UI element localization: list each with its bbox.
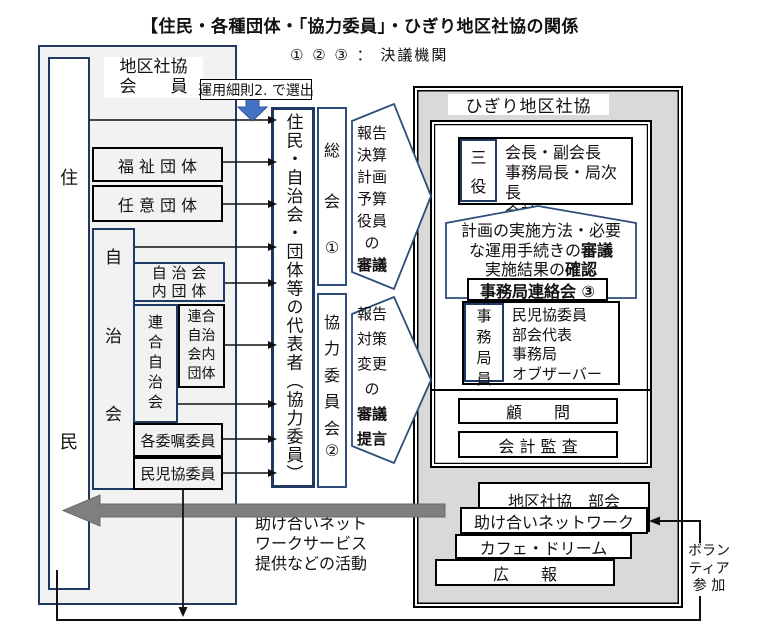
- page-title: 【住民・各種団体・「協力委員」・ひぎり地区社協の関係: [0, 12, 720, 37]
- organization-diagram: 【住民・各種団体・「協力委員」・ひぎり地区社協の関係 ① ② ③ ： 決議機関 …: [0, 0, 762, 636]
- officer-role: 事務局長・局次長: [505, 163, 631, 203]
- flow-word: 計画: [357, 166, 387, 187]
- assoc-internal-line2: 内 団 体: [152, 282, 207, 300]
- chevron-text: 計画の実施方法・必要 な運用手続きの審議 実施結果の確認: [446, 221, 636, 280]
- advisor-box: 顧 問: [458, 398, 618, 424]
- help-network-box: 助け合いネットワーク: [460, 507, 648, 534]
- coop-char: 力: [324, 335, 340, 359]
- welfare-groups-box: 福 祉 団 体: [92, 147, 223, 182]
- secretariat-char: 員: [476, 368, 491, 389]
- federation-internal-groups-box: 連合 自治 会内 団体: [178, 304, 225, 388]
- federation-assoc-label: 連合自治会: [145, 314, 166, 414]
- secretariat-char: 務: [476, 326, 491, 347]
- coop-char: 員: [324, 388, 340, 412]
- assembly-char: 会: [324, 188, 340, 212]
- secretariat-label-box: 事 務 局 員: [464, 303, 504, 382]
- flow-word: 審議: [357, 254, 387, 275]
- member-label-line1: 地区社協: [104, 57, 203, 77]
- volunteer-line: ボラン: [684, 543, 734, 561]
- voluntary-groups-box: 任 意 団 体: [92, 185, 223, 222]
- flow-word: 審議: [357, 403, 387, 424]
- officers-members: 会長・副会長 事務局長・局次長 会計: [505, 143, 631, 223]
- secretariat-member: 事務局: [512, 345, 602, 365]
- minji-members-box: 民児協委員: [133, 457, 223, 490]
- member-label: 地区社協 会 員: [104, 57, 203, 98]
- chevron-line1: 計画の実施方法・必要: [446, 221, 636, 241]
- secretariat-member: 民児協委員: [512, 306, 602, 326]
- coop-char: 協: [324, 309, 340, 333]
- volunteer-label: ボラン ティア 参 加: [684, 543, 734, 596]
- assoc-internal-groups-box: 自 治 会 内 団 体: [133, 262, 225, 302]
- assembly-flow-text: 報告 決算 計画 予算 役員 の 審議: [349, 122, 395, 275]
- selection-note-label: 運用細則2. で選出: [198, 80, 314, 100]
- residents-box: 住 民: [48, 57, 90, 590]
- jichikai-char: 治: [105, 322, 122, 347]
- flow-word: 決算: [357, 144, 387, 165]
- secretariat-char: 事: [476, 305, 491, 326]
- neighborhood-assoc-box: 自 治 会: [92, 228, 135, 490]
- flow-word: 変更: [357, 353, 387, 374]
- committee-flow-text: 報告 対策 変更 の 審議 提言: [349, 303, 395, 449]
- officer-role: 会計: [505, 203, 631, 223]
- higiri-header: ひぎり地区社協: [448, 94, 609, 115]
- flow-word: 報告: [357, 303, 387, 324]
- residents-char: 住: [60, 164, 78, 190]
- cafe-dream-box: カフェ・ドリーム: [455, 534, 632, 559]
- activity-note: 助け合いネット ワークサービス 提供などの活動: [255, 514, 367, 574]
- selection-note-box: 運用細則2. で選出: [200, 79, 312, 100]
- legend-note: ① ② ③ ： 決議機関: [290, 44, 448, 65]
- assembly-char: 総: [324, 137, 340, 161]
- flow-word: 役員: [357, 210, 387, 231]
- secretariat-liaison-box: 事務局連絡会 ③: [467, 278, 608, 301]
- chevron-line2: な運用手続きの審議: [446, 241, 636, 261]
- flow-word: の: [364, 232, 379, 253]
- activity-line: 提供などの活動: [255, 554, 367, 574]
- officers-label-box: 三 役: [460, 139, 497, 202]
- pr-box: 広 報: [435, 559, 615, 586]
- officers-char: 三: [470, 144, 486, 168]
- volunteer-line: ティア: [684, 561, 734, 579]
- flow-word: 予算: [357, 188, 387, 209]
- coop-number: ②: [325, 441, 339, 460]
- cooperation-committee-box: 協 力 委 員 会 ②: [317, 293, 347, 488]
- federation-internal-line: 団体: [188, 365, 216, 384]
- federation-internal-line: 会内: [188, 346, 216, 365]
- residents-char: 民: [60, 428, 78, 454]
- member-label-line2: 会 員: [104, 77, 203, 97]
- minji-drop-arrowhead: [179, 607, 188, 617]
- volunteer-line: 参 加: [684, 578, 734, 596]
- federation-internal-line: 連合: [188, 308, 216, 327]
- representatives-label: 住民・自治会・団体等の代表者（協力委員）: [281, 113, 306, 483]
- flow-word: 対策: [357, 328, 387, 349]
- secretariat-member: オブザーバー: [512, 365, 602, 385]
- federation-assoc-box: 連合自治会: [133, 304, 178, 423]
- activity-line: 助け合いネット: [255, 514, 367, 534]
- commissioned-members-box: 各委嘱委員: [133, 423, 223, 457]
- secretariat-char: 局: [476, 347, 491, 368]
- federation-internal-line: 自治: [188, 327, 216, 346]
- general-assembly-box: 総 会 ①: [317, 107, 347, 286]
- audit-box: 会 計 監 査: [458, 431, 618, 458]
- secretariat-staff-box: 事 務 局 員 民児協委員 部会代表 事務局 オブザーバー: [462, 301, 620, 385]
- coop-char: 会: [324, 415, 340, 439]
- secretariat-members: 民児協委員 部会代表 事務局 オブザーバー: [512, 306, 602, 384]
- flow-word: 報告: [357, 122, 387, 143]
- officers-box: 三 役 会長・副会長 事務局長・局次長 会計: [458, 137, 633, 205]
- activity-line: ワークサービス: [255, 534, 367, 554]
- officers-char: 役: [470, 173, 486, 197]
- flow-word: 提言: [357, 428, 387, 449]
- assoc-internal-line1: 自 治 会: [152, 264, 207, 282]
- jichikai-char: 自: [105, 243, 122, 268]
- jichikai-char: 会: [105, 400, 122, 425]
- representatives-box: 住民・自治会・団体等の代表者（協力委員）: [271, 107, 315, 488]
- coop-char: 委: [324, 362, 340, 386]
- officer-role: 会長・副会長: [505, 143, 631, 163]
- flow-word: の: [364, 378, 379, 399]
- secretariat-member: 部会代表: [512, 326, 602, 346]
- assembly-number: ①: [325, 238, 339, 257]
